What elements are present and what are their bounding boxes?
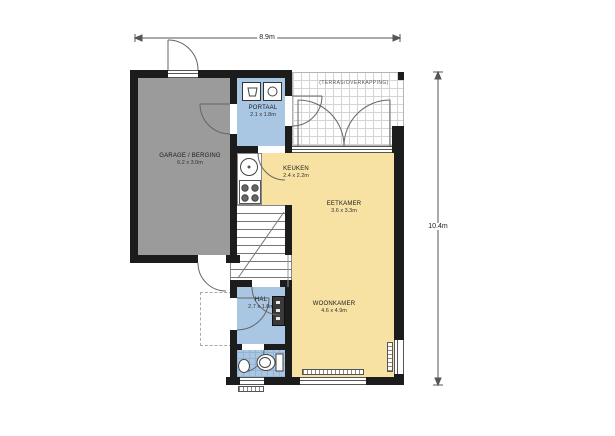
wall-segment bbox=[280, 280, 292, 287]
wall-segment bbox=[366, 377, 394, 385]
radiator bbox=[302, 369, 364, 375]
room-size: 3.6 x 3.3m bbox=[327, 208, 362, 215]
entrance-canopy-outline bbox=[200, 292, 232, 346]
wall-segment bbox=[230, 330, 237, 385]
wall-segment bbox=[130, 70, 138, 263]
room-size: 2.4 x 2.2m bbox=[283, 173, 309, 180]
height-dimension-label: 10.4m bbox=[426, 223, 449, 230]
room-size: 2.1 x 1.8m bbox=[249, 112, 278, 119]
wall-segment bbox=[198, 70, 292, 78]
wc-window bbox=[240, 377, 264, 385]
radiator bbox=[387, 342, 393, 372]
eetkamer-label: EETKAMER 3.6 x 3.3m bbox=[327, 200, 362, 215]
garage-back-door-opening bbox=[198, 255, 226, 263]
wall-segment bbox=[285, 70, 292, 96]
keuken-door-opening bbox=[258, 146, 285, 153]
width-dimension-label: 8.9m bbox=[257, 34, 277, 41]
washing-machine-icon bbox=[263, 82, 282, 101]
wall-segment bbox=[264, 344, 292, 350]
wall-segment bbox=[264, 377, 300, 385]
laundry-basket-icon bbox=[242, 82, 261, 101]
wall-segment bbox=[230, 280, 237, 298]
garage-door-opening bbox=[168, 70, 198, 78]
keuken-label: KEUKEN 2.4 x 2.2m bbox=[283, 165, 309, 180]
meter-cabinet bbox=[272, 296, 285, 326]
room-name: EETKAMER bbox=[327, 200, 362, 208]
side-window bbox=[394, 340, 404, 374]
room-name: HAL bbox=[248, 296, 274, 304]
garage-portaal-door-opening bbox=[230, 104, 237, 134]
room-size: 2.7 x 1.8m bbox=[248, 304, 274, 311]
garage-label: GARAGE / BERGING 6.2 x 3.0m bbox=[159, 152, 221, 167]
wall-segment bbox=[285, 205, 292, 255]
woonkamer-window bbox=[300, 377, 366, 385]
door-arc bbox=[168, 40, 198, 70]
wall-segment bbox=[285, 287, 292, 385]
wall-segment bbox=[230, 344, 242, 350]
front-door-opening bbox=[230, 298, 237, 330]
wall-segment bbox=[394, 148, 404, 340]
door-arc bbox=[198, 263, 226, 291]
terras-label: (TERRAS/OVERKAPPING) bbox=[319, 80, 388, 86]
room-name: KEUKEN bbox=[283, 165, 309, 173]
stove bbox=[239, 180, 261, 204]
wall-segment bbox=[394, 374, 404, 385]
wall-segment bbox=[230, 134, 237, 263]
wall-segment bbox=[285, 126, 292, 153]
room-wc bbox=[237, 350, 285, 377]
stairs bbox=[230, 205, 292, 282]
room-name: PORTAAL bbox=[249, 104, 278, 112]
wall-segment bbox=[130, 255, 198, 263]
portaal-label: PORTAAL 2.1 x 1.8m bbox=[249, 104, 278, 119]
doormat-grate bbox=[238, 386, 264, 392]
room-size: 4.6 x 4.9m bbox=[313, 308, 355, 315]
wc-door-opening bbox=[242, 344, 264, 350]
room-name: (TERRAS/OVERKAPPING) bbox=[319, 80, 388, 86]
woonkamer-label: WOONKAMER 4.6 x 4.9m bbox=[313, 300, 355, 315]
terras-post bbox=[398, 72, 404, 80]
room-name: GARAGE / BERGING bbox=[159, 152, 221, 160]
portaal-terras-door-opening bbox=[285, 96, 292, 126]
hal-label: HAL 2.7 x 1.8m bbox=[248, 296, 274, 311]
room-size: 6.2 x 3.0m bbox=[159, 160, 221, 167]
hal-passage-opening bbox=[252, 280, 280, 287]
wall-segment bbox=[230, 146, 258, 153]
room-name: WOONKAMER bbox=[313, 300, 355, 308]
french-doors-opening bbox=[292, 146, 392, 153]
wall-segment bbox=[230, 70, 237, 104]
floor-plan: GARAGE / BERGING 6.2 x 3.0m PORTAAL 2.1 … bbox=[0, 0, 615, 436]
